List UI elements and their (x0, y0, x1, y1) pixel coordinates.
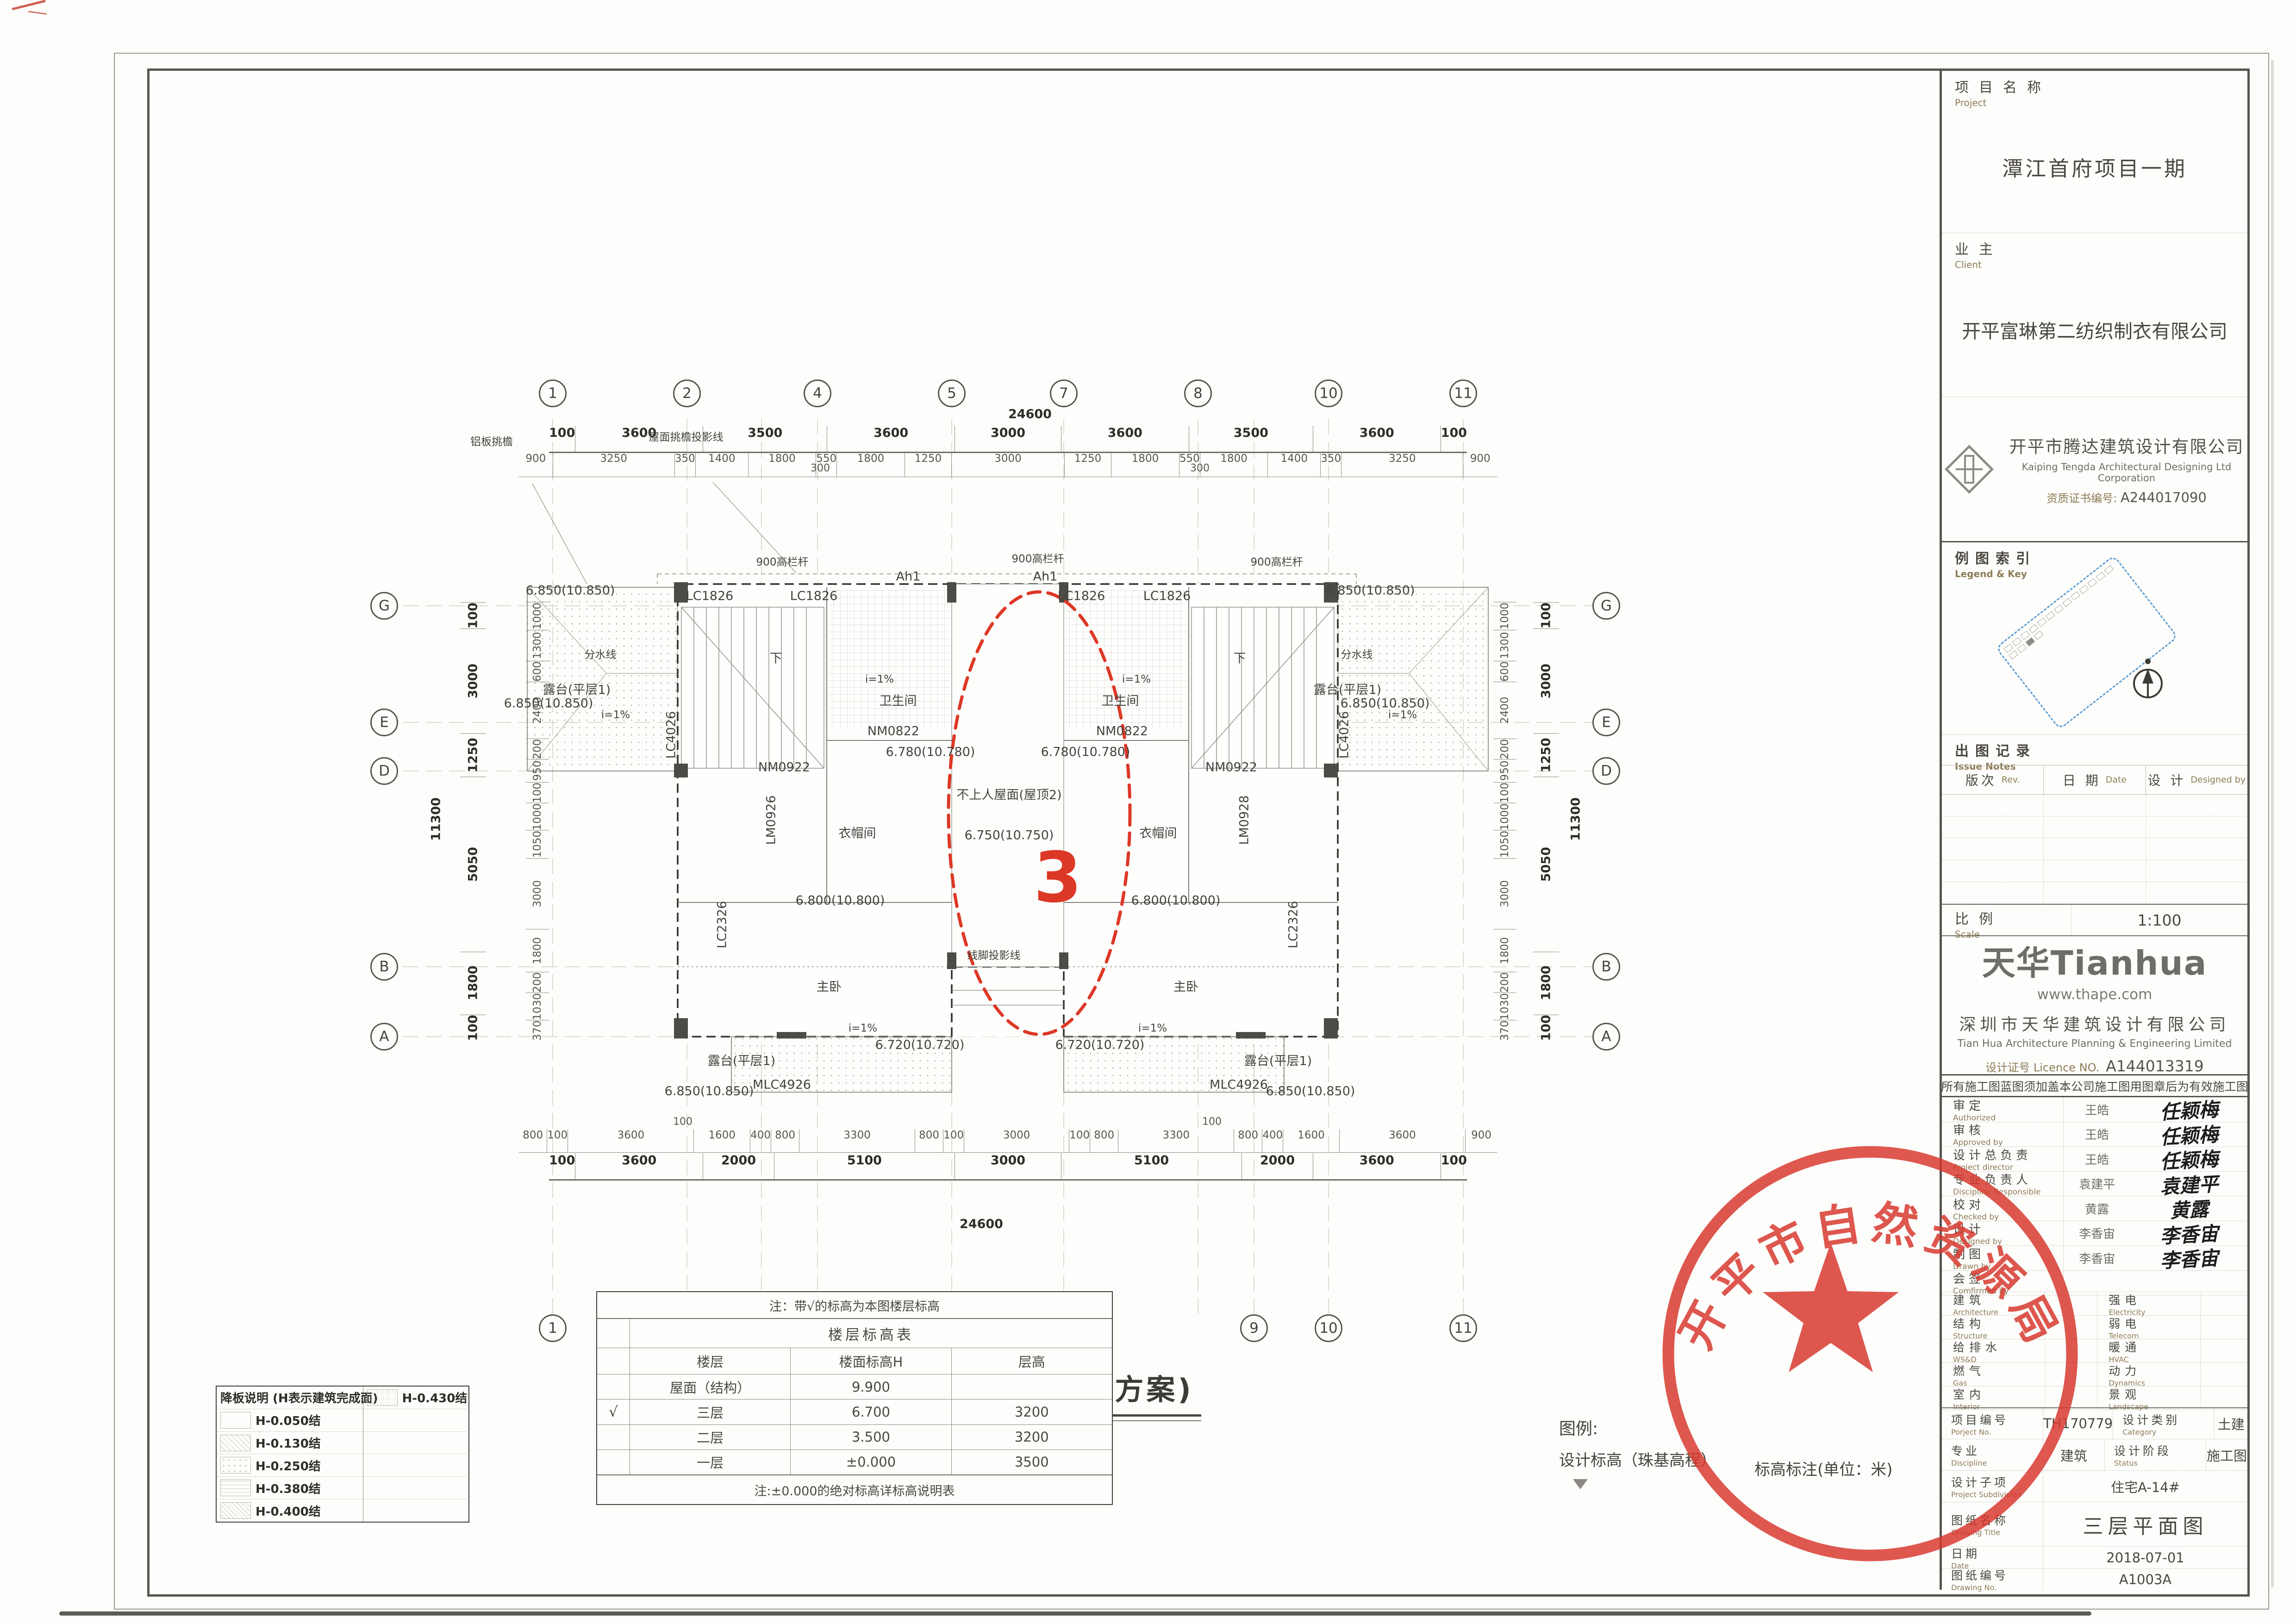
dim-value: 3000 (526, 858, 549, 929)
grid-bubble-right: B (1592, 953, 1620, 981)
dim-value: 900 (1466, 1129, 1497, 1152)
window-tag-lc4026: LC4026 (1337, 711, 1352, 759)
legend-elevation-label: 设计标高（珠基高程） (1559, 1448, 1716, 1470)
dim-value: 100 (943, 1129, 964, 1152)
dim-value: 1800 (1533, 951, 1559, 1014)
signature-row: 设计Designed by 李香宙 李香宙 (1942, 1221, 2247, 1246)
printed-name: 王皓 (2064, 1122, 2131, 1147)
dim-value: 3600 (568, 1129, 694, 1152)
drop-legend-label: H-0.400结 (256, 1502, 321, 1519)
signature-row: 校对Checked by 黄露 黄露 (1942, 1196, 2247, 1221)
elevation-6780: 6.780(10.780) (886, 745, 975, 759)
dim-value: 200 (1493, 739, 1516, 759)
dim-value: 950 (526, 759, 549, 782)
floor-table-row: 一层±0.0003500 (630, 1450, 1112, 1474)
grid-bubble-bottom: 9 (1240, 1314, 1268, 1342)
printed-name: 袁建平 (2064, 1172, 2131, 1196)
dim-value: 1050 (526, 830, 549, 858)
stair-down-label: 下 (1234, 648, 1246, 666)
room-label-bathroom: 卫生间 (880, 691, 917, 709)
printed-name: 王皓 (2064, 1097, 2131, 1122)
dim-value: 950 (1493, 759, 1516, 782)
dim-value: 3600 (1061, 426, 1189, 452)
slope-label: i=1% (601, 709, 630, 721)
dim-value: 800 (1234, 1129, 1262, 1152)
dim-value: 350 (675, 453, 696, 477)
grid-bubble-top: 2 (673, 379, 701, 407)
drawing-sheet: 3 24600 10036003500360030003600350036001… (0, 0, 2296, 1623)
dim-value: 1000 (1493, 602, 1516, 630)
door-tag-nm0922: NM0922 (758, 760, 810, 775)
slope-label: i=1% (1138, 1022, 1167, 1034)
dim-value: 1300 (1493, 630, 1516, 661)
dim-value: 3000 (955, 1153, 1061, 1179)
dim-value: 200 (526, 739, 549, 759)
dim-value: 900 (519, 453, 553, 477)
door-tag-lm0926: LM0926 (764, 795, 779, 845)
dim-value: 100 (526, 782, 549, 803)
thape-block: 天华Tianhua www.thape.com 深圳市天华建筑设计有限公司 Ti… (1942, 936, 2247, 1074)
tag-ah1: Ah1 (896, 570, 921, 584)
grid-bubble-top: 4 (804, 379, 831, 407)
dim-value: 2000 (703, 1153, 774, 1179)
drawing-title-value: 三层平面图 (2043, 1502, 2247, 1546)
plain-swatch-icon (220, 1412, 251, 1429)
slope-label: i=1% (865, 673, 894, 685)
dim-value: 2400 (1493, 682, 1516, 739)
dim-value: 1000 (526, 602, 549, 630)
floor-table-row: 二层3.5003200 (630, 1425, 1112, 1450)
discipline-table: 建筑Architecture 强电Electricity 结构Structure… (1942, 1292, 2247, 1407)
revision-number: 3 (1034, 838, 1082, 918)
dim-value: 3000 (460, 628, 486, 733)
printed-name: 李香宙 (2064, 1221, 2131, 1246)
elevation-6850: 6.850(10.850) (504, 696, 593, 711)
floor-table-row: 屋面（结构）9.900 (630, 1374, 1112, 1399)
room-label-master-bedroom: 主卧 (817, 977, 842, 995)
dim-value: 3000 (964, 1129, 1069, 1152)
subdivision-row: 设计子项Project Subdivision 住宅A-14# (1942, 1470, 2247, 1502)
grid-bubble-left: G (370, 592, 398, 620)
dim-value: 3600 (575, 1153, 703, 1179)
dim-value: 1000 (1493, 803, 1516, 831)
dim-value: 100 (1069, 1129, 1090, 1152)
dim-value: 5100 (774, 1153, 955, 1179)
scale-value: 1:100 (2071, 905, 2247, 935)
blueprint-note: 所有施工图蓝图须加盖本公司施工图用图章后为有效施工图 (1942, 1074, 2247, 1097)
annotation-alu-eave: 铝板挑檐 (470, 433, 513, 448)
dim-value: 100 (547, 1129, 568, 1152)
elevation-6800: 6.800(10.800) (796, 894, 885, 908)
dim-value: 3000 (1533, 628, 1559, 733)
dim-value: 100 (1441, 426, 1467, 452)
floor-table-header: 楼层 (630, 1348, 791, 1374)
tianhua-logo: 天华Tianhua (1982, 936, 2208, 984)
dim-value: 3500 (1189, 426, 1313, 452)
elevation-6780: 6.780(10.780) (1041, 745, 1130, 759)
door-tag-nm0822: NM0822 (1096, 724, 1148, 739)
dim-value: 1300 (526, 630, 549, 661)
project-no-row: 项目编号Porject No. TH170779 设计类别Category 土建 (1942, 1407, 2247, 1439)
dim-value: 3250 (553, 453, 675, 477)
floor-plan-drawing: 3 (389, 398, 1629, 1337)
signature-row: 审核Approved by 王皓 任颖梅 (1942, 1122, 2247, 1147)
discipline-status-row: 专业Discipline 建筑 设计阶段Status 施工图 (1942, 1439, 2247, 1470)
grid-hatch-icon (220, 1480, 251, 1496)
annotation-watershed: 分水线 (585, 646, 617, 661)
dim-value: 1250 (460, 733, 486, 777)
stair-down-label: 下 (770, 648, 782, 666)
printed-name: 王皓 (2064, 1147, 2131, 1171)
floor-table-header: 层高 (952, 1348, 1112, 1374)
dim-value: 2000 (1242, 1153, 1313, 1179)
dim-value: 1600 (694, 1129, 750, 1152)
dim-value: 1250 (905, 453, 952, 477)
elevation-6850: 6.850(10.850) (1326, 584, 1415, 598)
floor-table-header: 楼面标高H (791, 1348, 951, 1374)
elevation-6800: 6.800(10.800) (1131, 894, 1221, 908)
discipline-row: 结构Structure 弱电Telecom (1942, 1316, 2247, 1339)
discipline-value: 建筑 (2043, 1439, 2105, 1470)
room-label-terrace: 露台(平层1) (1244, 1051, 1312, 1069)
dim-offset: 100 (1202, 1116, 1222, 1128)
annotation-eave-line: 屋面挑檐投影线 (649, 428, 724, 444)
elevation-6850: 6.850(10.850) (1266, 1084, 1355, 1099)
signature-row: 专业负责人Discipline Responsible 袁建平 袁建平 (1942, 1172, 2247, 1197)
grid-bubble-right: D (1592, 757, 1620, 785)
window-tag-lc4026: LC4026 (664, 711, 679, 759)
door-tag-mlc4926: MLC4926 (1210, 1078, 1268, 1092)
issue-table-empty-row (1942, 860, 2247, 882)
dim-value: 3250 (1341, 453, 1463, 477)
window-tag-lc1826: LC1826 (686, 589, 734, 603)
window-tag-lc1826: LC1826 (790, 589, 838, 603)
dim-overall-right: 11300 (1569, 797, 1583, 841)
discipline-row: 给排水WS&D 暖通HVAC (1942, 1339, 2247, 1363)
dim-value: 3600 (1340, 1129, 1466, 1152)
dim-value: 5050 (1533, 777, 1559, 951)
grid-bubble-left: D (370, 757, 398, 785)
dim-value: 100 (460, 602, 486, 628)
dim-col-right-detail: 1000130060024002009501001000105030001800… (1493, 602, 1516, 1041)
date-row: 日期Date 2018-07-01 (1942, 1546, 2247, 1568)
grid-bubble-right: E (1592, 709, 1620, 736)
dim-value: 5050 (460, 777, 486, 951)
room-label-master-bedroom: 主卧 (1173, 977, 1198, 995)
dim-offset: 100 (673, 1116, 693, 1128)
floor-table-title: 楼层标高表 (630, 1319, 1112, 1348)
elevation-6850: 6.850(10.850) (665, 1084, 754, 1099)
terrace-left-roof (527, 587, 678, 771)
project-no-value: TH170779 (2043, 1408, 2113, 1439)
dim-value: 1800 (1493, 929, 1516, 971)
window-tag-lc2326: LC2326 (715, 901, 730, 949)
elevation-6720: 6.720(10.720) (1055, 1038, 1145, 1052)
signature-table: 审定Authorized 王皓 任颖梅 审核Approved by 王皓 任颖梅… (1942, 1097, 2247, 1292)
room-label-bathroom: 卫生间 (1102, 691, 1139, 709)
grid-bubble-top: 8 (1184, 379, 1212, 407)
dim-value: 1800 (460, 951, 486, 1014)
grid-bubble-top: 1 (539, 379, 567, 407)
grid-bubble-top: 10 (1315, 379, 1342, 407)
drawing-title-row: 图纸名称Drawing Title 三层平面图 (1942, 1502, 2247, 1546)
drop-legend-title: 降板说明 (H表示建筑完成面) (220, 1389, 378, 1406)
subdivision-value: 住宅A-14# (2043, 1471, 2247, 1502)
hex-hatch-icon (367, 1389, 398, 1406)
dim-value: 350 (1321, 453, 1341, 477)
dim-value: 1400 (696, 453, 749, 477)
dim-value: 1800 (749, 453, 816, 477)
annotation-railing: 900高栏杆 (1251, 553, 1303, 569)
grid-bubble-top: 5 (938, 379, 966, 407)
dim-value: 800 (915, 1129, 943, 1152)
scan-artifact-edge (2271, 60, 2274, 1587)
legend-unit-label: 标高标注(单位：米) (1754, 1457, 1893, 1480)
elevation-6850: 6.850(10.850) (1341, 696, 1430, 711)
dim-value: 1400 (1268, 453, 1321, 477)
site-key-area (1942, 572, 2247, 734)
dim-value: 1000 (526, 803, 549, 831)
annotation-moulding-line: 线脚投影线 (967, 946, 1021, 962)
grid-bubble-top: 11 (1449, 379, 1477, 407)
title-block: 项目名称Project 潭江首府项目一期 业主Client 开平富琳第二纺织制衣… (1940, 71, 2247, 1590)
legend-key-label: 例图索引 Legend & Key (1942, 541, 2247, 572)
dim-row-bottom-main: 1003600200051003000510020003600100 (549, 1153, 1467, 1181)
dim-value: 100 (549, 426, 575, 452)
elevation-symbol-icon (1573, 1479, 1588, 1489)
issue-table-header: 版次Rev. (1942, 765, 2044, 794)
dim-value: 800 (771, 1129, 799, 1152)
grid-bubble-right: G (1592, 592, 1620, 620)
drawing-no-row: 图纸编号Drawing No. A1003A (1942, 1568, 2247, 1590)
issue-notes-table: 版次Rev. 日 期Date 设 计Designed by (1942, 765, 2247, 904)
drop-legend-label: H-0.430结 (402, 1389, 468, 1406)
drop-legend-label: H-0.050结 (256, 1412, 321, 1429)
design-firm-block: 开平市腾达建筑设计有限公司 Kaiping Tengda Architectur… (1942, 397, 2247, 541)
dim-value: 1800 (526, 929, 549, 971)
annotation-railing: 900高栏杆 (756, 553, 809, 569)
dim-value: 3300 (1118, 1129, 1234, 1152)
dim-value: 800 (1090, 1129, 1118, 1152)
issue-notes-label: 出图记录 Issue Notes (1942, 734, 2247, 765)
dim-overall-bottom: 24600 (960, 1217, 1003, 1231)
dim-col-right-main: 1003000125050501800100 (1533, 602, 1559, 1041)
dim-value: 1800 (1111, 453, 1179, 477)
drop-legend-label: H-0.130结 (256, 1434, 321, 1451)
signature-row: 设计总负责Project director 王皓 任颖梅 (1942, 1147, 2247, 1172)
issue-table-header: 日 期Date (2044, 765, 2146, 794)
dim-value: 400 (750, 1129, 771, 1152)
floor-table-note-bottom: 注:±0.000的绝对标高详标高说明表 (597, 1474, 1112, 1504)
dim-offset: 300 (811, 463, 830, 474)
grid-bubble-left: B (370, 953, 398, 981)
project-label: 项目名称Project (1942, 71, 2247, 100)
dim-value: 200 (1493, 972, 1516, 993)
room-label-terrace: 露台(平层1) (543, 680, 611, 698)
project-name: 潭江首府项目一期 (1942, 100, 2247, 233)
status-value: 施工图 (2206, 1439, 2247, 1470)
door-tag-nm0822: NM0822 (867, 724, 919, 739)
room-label-terrace: 露台(平层1) (708, 1051, 775, 1069)
dim-value: 5100 (1061, 1153, 1242, 1179)
dim-value: 600 (1493, 661, 1516, 682)
signature-row: 制图Drawn by 李香宙 李香宙 (1942, 1246, 2247, 1271)
slope-label: i=1% (1122, 673, 1151, 685)
room-label-cloakroom: 衣帽间 (1140, 823, 1177, 841)
issue-table-empty-row (1942, 882, 2247, 904)
dim-value: 3600 (1313, 1153, 1441, 1179)
diagonal-hatch-icon (220, 1435, 251, 1451)
dim-overall-top: 24600 (1008, 407, 1052, 422)
date-value: 2018-07-01 (2043, 1547, 2247, 1568)
tengda-logo-icon (1942, 442, 1997, 497)
floor-elevation-table: 注：带√的标高为本图楼层标高 √ 楼层标高表 楼层 楼面标高H 层高 屋面（结构… (596, 1291, 1113, 1505)
client-name: 开平富琳第二纺织制衣有限公司 (1942, 262, 2247, 397)
dim-value: 100 (549, 1153, 575, 1179)
grid-bubble-bottom: 1 (539, 1314, 567, 1342)
floor-table-check-column: √ (597, 1319, 630, 1474)
dot-hatch-icon (220, 1457, 251, 1474)
dim-value: 1600 (1283, 1129, 1340, 1152)
discipline-row: 燃气Gas 动力Dynamics (1942, 1363, 2247, 1387)
dim-value: 900 (1463, 453, 1497, 477)
scan-artifact-shadow (59, 1611, 2091, 1616)
dim-value: 100 (460, 1014, 486, 1041)
dim-value: 370 (526, 1020, 549, 1041)
dim-value: 800 (519, 1129, 547, 1152)
dim-offset: 300 (1190, 463, 1210, 474)
dim-value: 3000 (1493, 858, 1516, 929)
door-tag-nm0922: NM0922 (1205, 760, 1257, 775)
dim-value: 100 (1533, 1014, 1559, 1041)
elevation-6850: 6.850(10.850) (526, 584, 615, 598)
floor-table-note-top: 注：带√的标高为本图楼层标高 (597, 1292, 1112, 1319)
dim-value: 1250 (1065, 453, 1112, 477)
dim-value: 100 (1441, 1153, 1467, 1179)
grid-bubble-left: E (370, 709, 398, 736)
client-label: 业主Client (1942, 233, 2247, 262)
floor-table-row: 三层6.7003200 (630, 1399, 1112, 1424)
grid-bubble-bottom: 10 (1315, 1314, 1342, 1342)
dim-value: 1030 (526, 993, 549, 1020)
door-tag-mlc4926: MLC4926 (753, 1078, 811, 1092)
issue-table-header: 设 计Designed by (2146, 765, 2247, 794)
annotation-railing: 900高栏杆 (1012, 550, 1064, 566)
issue-table-empty-row (1942, 838, 2247, 860)
dim-value: 100 (1493, 782, 1516, 803)
dim-value: 3300 (799, 1129, 915, 1152)
dim-value: 3600 (1313, 426, 1441, 452)
dim-value: 1800 (1200, 453, 1268, 477)
dim-value: 370 (1493, 1020, 1516, 1041)
slope-label: i=1% (1388, 709, 1417, 721)
dim-value: 600 (526, 661, 549, 682)
discipline-row: 建筑Architecture 强电Electricity (1942, 1292, 2247, 1316)
dim-value: 1800 (837, 453, 905, 477)
north-arrow-icon (2127, 655, 2169, 706)
cross-hatch-icon (220, 1502, 251, 1519)
printed-name: 黄露 (2064, 1196, 2131, 1221)
room-label-cloakroom: 衣帽间 (839, 823, 876, 841)
scale-row: 比例Scale 1:100 (1942, 904, 2247, 936)
door-tag-lm0928: LM0928 (1237, 795, 1252, 845)
dim-value: 200 (526, 972, 549, 993)
category-value: 土建 (2215, 1408, 2247, 1439)
issue-table-empty-row (1942, 816, 2247, 838)
tag-ah1: Ah1 (1033, 570, 1058, 584)
slope-label: i=1% (849, 1022, 877, 1034)
dim-col-left-main: 1003000125050501800100 (460, 602, 486, 1041)
discipline-row: 室内Interior 景观Landscape (1942, 1387, 2247, 1410)
window-tag-lc1826: LC1826 (1143, 589, 1191, 603)
dim-value: 1250 (1533, 733, 1559, 777)
dim-row-bottom-detail: 8001003600160040080033008001003000100800… (519, 1129, 1497, 1153)
elevation-6720: 6.720(10.720) (875, 1038, 965, 1052)
dim-value: 3600 (827, 426, 955, 452)
legend-title: 图例: (1559, 1415, 1598, 1439)
drop-legend-label: H-0.380结 (256, 1480, 321, 1497)
drop-legend-label: H-0.250结 (256, 1457, 321, 1474)
dim-row-top-detail: 9003250350140018005501800125030001250180… (519, 453, 1497, 477)
annotation-watershed: 分水线 (1341, 646, 1373, 661)
room-label-terrace: 露台(平层1) (1314, 680, 1381, 698)
dim-overall-left: 11300 (429, 797, 443, 841)
dim-value: 1050 (1493, 830, 1516, 858)
dim-value: 400 (1262, 1129, 1283, 1152)
grid-bubble-left: A (370, 1023, 398, 1051)
dim-value: 3000 (955, 426, 1061, 452)
dim-value: 1030 (1493, 993, 1516, 1020)
window-tag-lc2326: LC2326 (1286, 901, 1301, 949)
issue-table-empty-row (1942, 795, 2247, 816)
grid-bubble-bottom: 11 (1449, 1314, 1477, 1342)
elevation-6750: 6.750(10.750) (965, 828, 1054, 843)
drop-slab-legend-table: 降板说明 (H表示建筑完成面) H-0.050结 H-0.130结 H-0.25… (216, 1386, 469, 1523)
grid-bubble-top: 7 (1050, 379, 1078, 407)
grid-bubble-right: A (1592, 1023, 1620, 1051)
terrace-right-roof (1338, 587, 1488, 771)
signature-row: 审定Authorized 王皓 任颖梅 (1942, 1097, 2247, 1122)
printed-name: 李香宙 (2064, 1246, 2131, 1270)
room-label-center-roof: 不上人屋面(屋顶2) (956, 785, 1061, 803)
dim-col-left-detail: 1000130060024002009501001000105030001800… (526, 602, 549, 1041)
dim-value: 100 (1533, 602, 1559, 628)
drawing-no-value: A1003A (2043, 1569, 2247, 1590)
window-tag-lc1826: LC1826 (1058, 589, 1105, 603)
dim-value: 3000 (952, 453, 1064, 477)
